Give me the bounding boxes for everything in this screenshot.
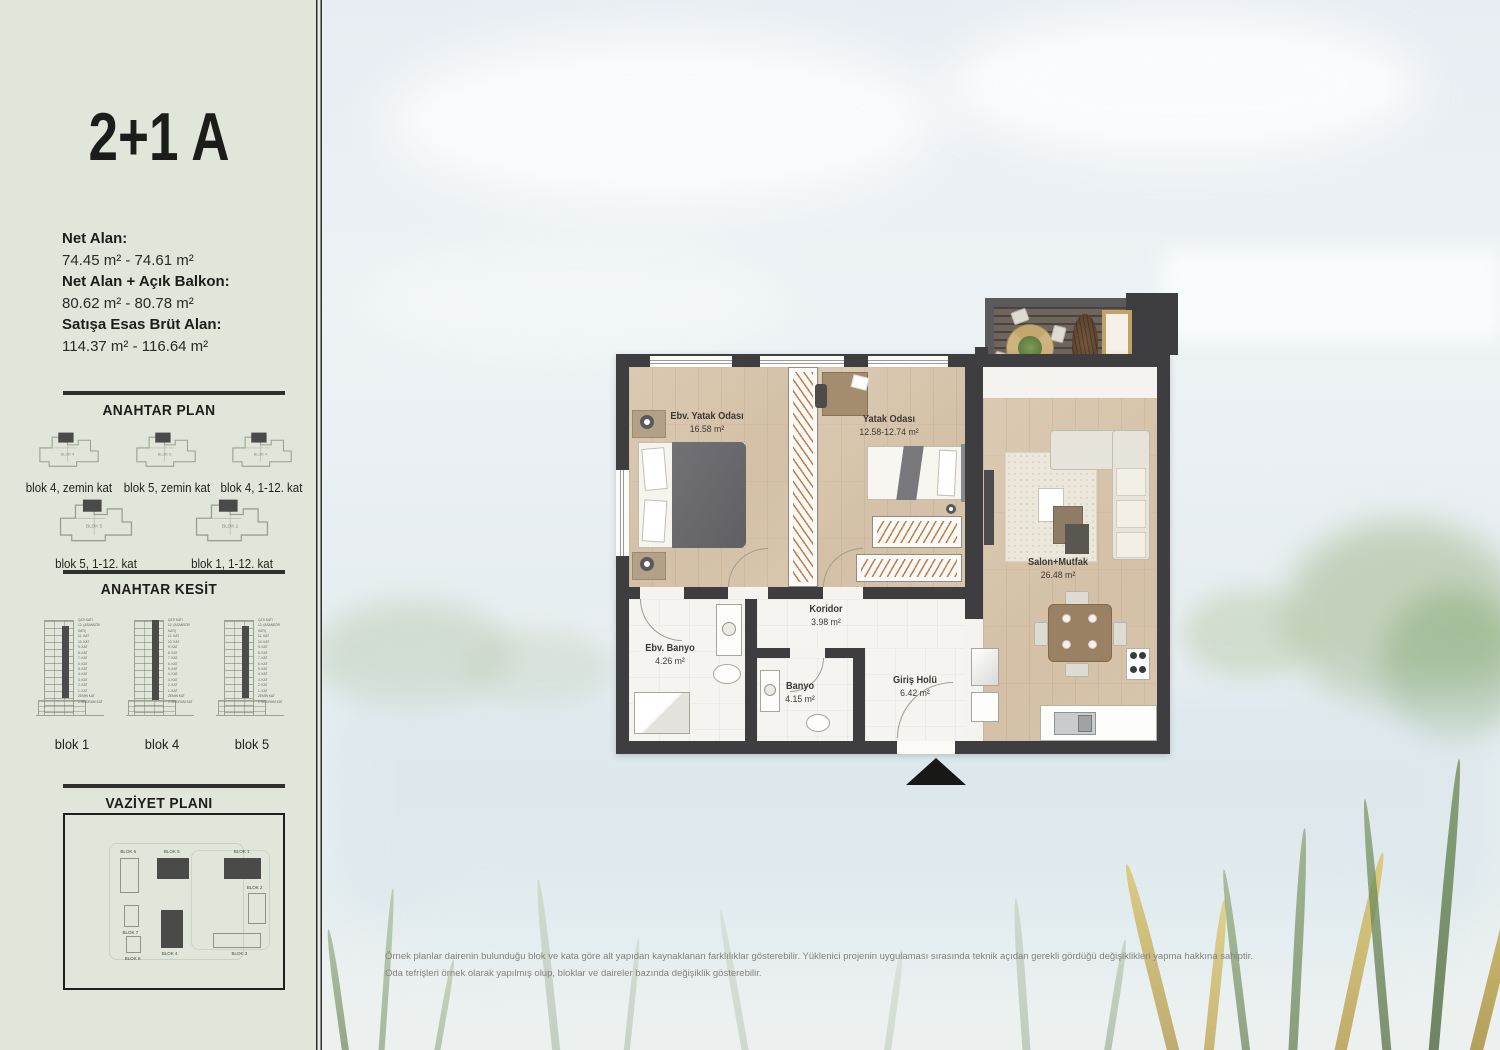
interior-wall	[757, 648, 790, 658]
site-block-label: BLOK 4	[162, 951, 178, 956]
key-plan-tag: BLOK 1	[222, 524, 239, 529]
tower-ground	[216, 715, 284, 716]
wall-stub	[1126, 293, 1178, 355]
coffee-table	[1065, 524, 1089, 554]
stove-burner	[1130, 666, 1137, 673]
grass-blade-decoration	[1360, 799, 1392, 1050]
lamp	[640, 557, 654, 571]
corridor-floor	[757, 599, 965, 648]
pillow	[937, 450, 957, 497]
grass-decoration	[463, 630, 613, 710]
area-label: Net Alan:	[62, 228, 292, 250]
key-plan-caption: blok 5, 1-12. kat	[50, 557, 142, 571]
site-plan-heading: VAZİYET PLANI	[13, 795, 306, 812]
floorplan: Balkon 6.17 m² Ebv. Yatak Od	[610, 292, 1185, 792]
tv-unit	[984, 470, 994, 545]
entrance-arrow-icon	[906, 758, 966, 785]
key-section-diagram: ÇATI KATI 12. (ASANSÖR KATI) 11. KAT 10.…	[216, 612, 288, 732]
key-plan-diagram: BLOK 5	[126, 428, 206, 474]
closet-hangers	[861, 559, 957, 577]
balcony-wall	[985, 298, 1143, 307]
toilet	[713, 664, 741, 684]
area-value: 74.45 m² - 74.61 m²	[62, 250, 292, 272]
key-plan-caption: blok 4, zemin kat	[25, 481, 111, 495]
key-plan-diagram: BLOK 4	[29, 428, 109, 474]
interior-wall	[768, 587, 823, 599]
interior-wall	[684, 587, 728, 599]
dining-chair	[1065, 663, 1089, 677]
closet	[872, 516, 962, 548]
tower-ground	[126, 715, 194, 716]
room-label-living-room: Salon+Mutfak 26.48 m²	[1025, 556, 1090, 582]
grass-blade-decoration	[1428, 759, 1464, 1050]
tower-caption: blok 4	[129, 736, 195, 752]
wardrobe-unit	[788, 367, 818, 587]
cloud-decoration	[383, 30, 943, 210]
room-name: Giriş Holü	[893, 674, 937, 687]
room-name: Yatak Odası	[859, 413, 918, 426]
room-area: 4.26 m²	[645, 655, 694, 668]
key-plan-item: BLOK 4 blok 4, zemin kat	[22, 428, 116, 495]
plate	[1088, 614, 1097, 623]
key-plan-diagram: BLOK 5	[46, 494, 146, 550]
wardrobe-hangers	[793, 372, 813, 582]
cabinet	[971, 692, 999, 722]
site-block-outline	[213, 933, 261, 949]
desk-chair	[815, 384, 827, 408]
dining-chair	[1113, 622, 1127, 646]
dining-chair	[1065, 591, 1089, 605]
partition-wall	[965, 367, 983, 619]
room-area: 16.58 m²	[670, 423, 743, 436]
tower-floor-labels: ÇATI KATI 12. (ASANSÖR KATI) 11. KAT 10.…	[258, 618, 288, 705]
pillow	[641, 447, 668, 491]
closet-hangers	[877, 521, 957, 543]
disclaimer-line: Oda tefrişleri örnek olarak yapılmış olu…	[385, 965, 1253, 982]
site-block-label: BLOK 6	[120, 849, 136, 854]
site-block-label: BLOK 5	[164, 849, 180, 854]
key-plan-caption: blok 4, 1-12. kat	[221, 481, 303, 495]
key-plan-item: BLOK 4 blok 4, 1-12. kat	[217, 428, 306, 495]
info-sidebar: 2+1 A Net Alan: 74.45 m² - 74.61 m² Net …	[0, 0, 318, 1050]
section-divider	[63, 784, 285, 788]
section-divider	[63, 391, 285, 395]
lamp	[946, 504, 956, 514]
master-bed-duvet	[672, 442, 746, 548]
reed-decoration	[1468, 824, 1500, 1050]
sofa-cushion	[1116, 500, 1146, 528]
key-section-heading: ANAHTAR KESİT	[13, 581, 306, 598]
key-plan-heading: ANAHTAR PLAN	[13, 402, 306, 419]
lamp	[640, 415, 654, 429]
grass-blade-decoration	[1288, 828, 1309, 1050]
refrigerator	[971, 648, 999, 686]
sink	[722, 622, 736, 636]
site-block-label: BLOK 1	[234, 849, 250, 854]
site-block-highlight	[224, 858, 261, 879]
interior-wall	[629, 587, 640, 599]
area-summary: Net Alan: 74.45 m² - 74.61 m² Net Alan +…	[62, 228, 292, 357]
stove-burner	[1139, 666, 1146, 673]
dining-chair	[1034, 622, 1048, 646]
key-section-row: ÇATI KATI 12. (ASANSÖR KATI) 11. KAT 10.…	[36, 612, 288, 732]
sidebar-divider-line	[316, 0, 323, 1050]
window	[650, 356, 732, 367]
tower-highlight	[62, 626, 69, 698]
tower-floor-labels: ÇATI KATI 12. (ASANSÖR KATI) 11. KAT 10.…	[78, 618, 108, 705]
room-label-entry-hall: Giriş Holü 6.42 m²	[891, 674, 939, 700]
closet	[856, 554, 962, 582]
pillow	[642, 499, 668, 543]
window	[760, 356, 844, 367]
site-block-outline	[124, 905, 139, 927]
interior-wall	[863, 587, 965, 599]
tower-highlight	[152, 620, 159, 700]
key-plan-tag: BLOK 4	[60, 453, 74, 457]
grass-decoration	[313, 600, 513, 710]
key-plan-tag: BLOK 5	[158, 453, 171, 457]
plate	[1062, 614, 1071, 623]
key-section-diagram: ÇATI KATI 12. (ASANSÖR KATI) 11. KAT 10.…	[126, 612, 198, 732]
key-plan-tag: BLOK 5	[86, 524, 103, 529]
tower-highlight	[242, 626, 249, 698]
site-block-label: BLOK 3	[232, 951, 248, 956]
room-area: 3.98 m²	[809, 616, 842, 629]
key-plan-tag: BLOK 4	[254, 453, 268, 457]
tower-ground	[36, 715, 104, 716]
bed-headboard	[961, 444, 965, 502]
window	[616, 470, 629, 556]
plate	[1062, 640, 1071, 649]
disclaimer-line: Örnek planlar dairenin bulunduğu blok ve…	[385, 948, 1253, 965]
key-plan-caption: blok 5, zemin kat	[123, 481, 209, 495]
interior-wall	[745, 599, 757, 741]
key-plan-item: BLOK 5 blok 5, zemin kat	[120, 428, 214, 495]
sink-basin	[1078, 715, 1092, 732]
interior-wall	[853, 648, 865, 741]
toilet	[806, 714, 830, 732]
room-area: 4.15 m²	[785, 693, 815, 706]
area-value: 114.37 m² - 116.64 m²	[62, 336, 292, 358]
disclaimer: Örnek planlar dairenin bulunduğu blok ve…	[385, 948, 1253, 982]
stove-burner	[1130, 652, 1137, 659]
sofa-cushion	[1116, 468, 1146, 496]
site-block-label: BLOK 2	[247, 885, 263, 890]
plate	[1088, 640, 1097, 649]
tower-caption: blok 1	[39, 736, 105, 752]
tree-decoration	[1183, 590, 1313, 680]
room-label-corridor: Koridor 3.98 m²	[808, 603, 844, 629]
key-plan-diagram: BLOK 4	[222, 428, 302, 474]
shower	[634, 692, 690, 734]
stove-burner	[1139, 652, 1146, 659]
dining-table	[1048, 604, 1112, 662]
tree-decoration	[1283, 520, 1500, 710]
room-name: Ebv. Yatak Odası	[670, 410, 743, 423]
area-value: 80.62 m² - 80.78 m²	[62, 293, 292, 315]
cloud-decoration	[943, 10, 1423, 160]
key-section-diagram: ÇATI KATI 12. (ASANSÖR KATI) 11. KAT 10.…	[36, 612, 108, 732]
area-label: Satışa Esas Brüt Alan:	[62, 314, 292, 336]
tower-floor-labels: ÇATI KATI 12. (ASANSÖR KATI) 11. KAT 10.…	[168, 618, 198, 705]
room-label-bathroom: Banyo 4.15 m²	[784, 680, 816, 706]
room-area: 12.58-12.74 m²	[859, 426, 918, 439]
entrance-threshold	[895, 741, 957, 754]
room-label-master-bedroom: Ebv. Yatak Odası 16.58 m²	[667, 410, 747, 436]
room-name: Ebv. Banyo	[645, 642, 694, 655]
site-block-outline	[126, 936, 141, 953]
key-plan-item: BLOK 5 blok 5, 1-12. kat	[46, 494, 146, 571]
area-label: Net Alan + Açık Balkon:	[62, 271, 292, 293]
interior-wall	[825, 648, 853, 658]
site-block-label: BLOK 8	[125, 956, 141, 961]
site-block-highlight	[161, 910, 183, 948]
site-plan: BLOK 6 BLOK 5 BLOK 1 BLOK 2 BLOK 7 BLOK …	[63, 813, 285, 990]
site-block-outline	[120, 858, 140, 893]
key-plan-row: BLOK 5 blok 5, 1-12. kat BLOK 1 blok 1, …	[40, 494, 288, 571]
key-plan-item: BLOK 1 blok 1, 1-12. kat	[182, 494, 282, 571]
tree-decoration	[1383, 590, 1500, 740]
room-label-master-bath: Ebv. Banyo 4.26 m²	[643, 642, 697, 668]
section-divider	[63, 570, 285, 574]
key-plan-row: BLOK 4 blok 4, zemin kat BLOK 5 blok 5, …	[40, 428, 288, 495]
room-name: Koridor	[809, 603, 842, 616]
room-label-bedroom: Yatak Odası 12.58-12.74 m²	[857, 413, 921, 439]
tower-caption: blok 5	[219, 736, 285, 752]
sink	[764, 684, 776, 696]
sofa-cushion	[1116, 532, 1146, 558]
grass-blade-decoration	[325, 929, 350, 1050]
site-block-outline	[248, 893, 265, 924]
site-block-label: BLOK 7	[123, 930, 139, 935]
window	[868, 356, 948, 367]
key-plan-diagram: BLOK 1	[182, 494, 282, 550]
plan-type-title: 2+1 A	[35, 98, 283, 176]
room-name: Salon+Mutfak	[1028, 556, 1088, 569]
site-block-highlight	[157, 858, 190, 879]
room-name: Banyo	[785, 680, 815, 693]
room-area: 26.48 m²	[1028, 569, 1088, 582]
cloud-decoration	[1163, 250, 1500, 340]
key-plan-caption: blok 1, 1-12. kat	[186, 557, 278, 571]
room-area: 6.42 m²	[893, 687, 937, 700]
reed-decoration	[1333, 851, 1388, 1050]
